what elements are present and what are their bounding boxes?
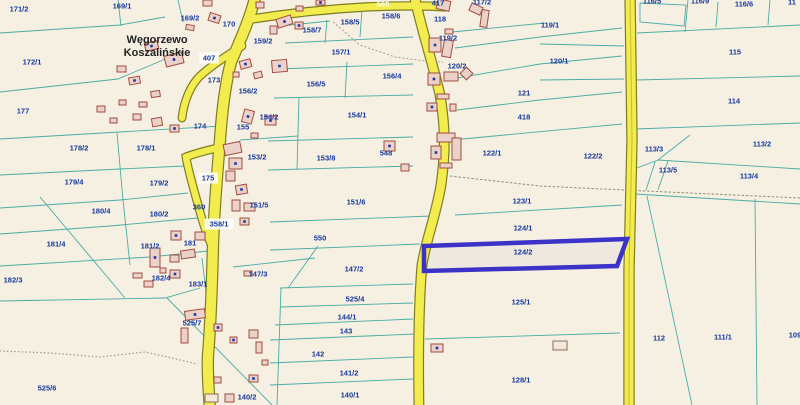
parcel-label: 154/2 — [260, 113, 279, 122]
parcel-boundary — [457, 92, 622, 110]
parcel-boundary — [540, 44, 624, 46]
parcel-boundary — [360, 10, 362, 37]
building — [186, 24, 195, 30]
address-point-dot — [194, 313, 197, 316]
parcel-boundary — [452, 124, 622, 140]
parcel-boundary — [455, 205, 622, 215]
address-point-dot — [243, 220, 246, 223]
parcel-label: 155 — [237, 123, 250, 132]
cadastral-map[interactable]: 171/2169/1169/2170159/2172/1407173156/21… — [0, 0, 800, 405]
parcel-label: 178/1 — [137, 144, 156, 153]
parcel-label: 170 — [223, 20, 236, 29]
parcel-boundary — [637, 25, 800, 33]
parcel-boundary — [274, 95, 413, 98]
parcel-label: 156/2 — [239, 87, 258, 96]
building — [232, 200, 240, 211]
building — [170, 255, 179, 262]
parcel-label: 180/2 — [150, 210, 169, 219]
parcel-label: 122/2 — [584, 152, 603, 161]
parcel-label: 525/7 — [183, 319, 202, 328]
building — [440, 163, 452, 168]
parcel-label: 181/4 — [47, 240, 67, 249]
parcel-label: 142 — [312, 350, 325, 359]
parcel-boundary — [768, 0, 770, 25]
parcel-boundary — [635, 76, 800, 80]
parcel-label: 114 — [728, 97, 741, 106]
parcel-label: 156/5 — [307, 80, 326, 89]
parcel-label: 183/1 — [189, 280, 208, 289]
map-viewport[interactable]: 171/2169/1169/2170159/2172/1407173156/21… — [0, 0, 800, 405]
parcel-label: 525/6 — [38, 384, 57, 393]
address-point-dot — [435, 151, 438, 154]
building — [160, 268, 166, 273]
address-point-dot — [240, 188, 243, 191]
building — [253, 71, 262, 79]
building — [133, 114, 141, 120]
parcel-boundary — [647, 196, 692, 405]
parcel-label: 124/1 — [514, 224, 533, 233]
address-point-dot — [252, 377, 255, 380]
parcel-boundary — [240, 136, 298, 140]
parcel-label: 128/1 — [512, 376, 531, 385]
parcel-label: 11 — [788, 0, 796, 7]
parcel-label: 120/1 — [550, 57, 569, 66]
address-point-dot — [154, 256, 157, 259]
parcel-boundary — [457, 56, 622, 78]
parcel-label: 525/4 — [346, 295, 366, 304]
parcel-boundary — [452, 23, 545, 32]
parcel-label: 124/2 — [514, 248, 533, 257]
parcel-boundary — [658, 160, 800, 169]
parcel-label: 182/3 — [4, 276, 23, 285]
parcel-label: 182/4 — [152, 274, 172, 283]
parcel-boundary — [280, 284, 413, 288]
buildings-layer — [97, 0, 567, 402]
address-point-dot — [436, 347, 439, 350]
building — [226, 171, 235, 181]
parcel-boundary — [270, 357, 413, 363]
address-point-dot — [173, 127, 176, 130]
parcel-label: 159/2 — [254, 37, 273, 46]
address-point-dot — [232, 339, 235, 342]
parcel-label: 118 — [434, 15, 446, 24]
parcel-label: 140/1 — [341, 391, 360, 400]
parcel-label: 123/1 — [513, 197, 532, 206]
building — [262, 360, 268, 365]
building — [214, 377, 221, 383]
parcel-boundary — [268, 137, 413, 141]
parcel-label: 121 — [518, 89, 531, 98]
parcel-label: 111/1 — [714, 333, 732, 342]
address-point-dot — [434, 44, 437, 47]
parcel-label: 117/2 — [473, 0, 491, 7]
parcel-label: 181 — [184, 239, 197, 248]
building — [181, 328, 188, 343]
address-point-dot — [298, 24, 301, 27]
building — [133, 273, 142, 278]
parcel-label: 407 — [203, 54, 216, 63]
parcel-label: 113/3 — [645, 145, 663, 154]
parcel-boundary — [425, 333, 620, 339]
parcel-boundary — [297, 97, 299, 170]
building — [117, 66, 126, 72]
parcel-label: 173 — [208, 76, 221, 85]
parcel-label: 175 — [202, 174, 215, 183]
parcel-label: 417 — [432, 0, 445, 8]
parcel-label: 119/1 — [541, 21, 559, 30]
building — [296, 6, 303, 11]
parcel-boundary — [635, 123, 800, 129]
parcel-label: 156/4 — [383, 72, 403, 81]
address-point-dot — [175, 234, 178, 237]
parcel-boundary — [635, 194, 800, 204]
parcel-label: 151/6 — [347, 198, 366, 207]
parcel-boundary — [233, 258, 315, 267]
parcel-label: 153/8 — [317, 154, 336, 163]
parcel-boundary — [277, 64, 413, 69]
parcel-boundary — [345, 62, 347, 98]
parcel-label: 116/9 — [691, 0, 709, 6]
parcel-label: 171/2 — [10, 5, 29, 14]
parcel-boundary — [270, 216, 432, 222]
parcel-label: 180/4 — [92, 207, 112, 216]
parcel-boundary — [270, 379, 413, 385]
building — [256, 2, 264, 8]
parcel-label: 154/1 — [348, 111, 367, 120]
parcel-boundary — [325, 20, 327, 43]
parcel-boundary — [288, 246, 318, 288]
parcel-boundary — [270, 244, 420, 250]
parcel-label: 113/4 — [740, 172, 759, 181]
address-point-dot — [133, 79, 136, 82]
address-point-dot — [234, 162, 237, 165]
parcel-label: 158/7 — [303, 26, 322, 35]
parcel-boundary — [540, 79, 624, 80]
building — [151, 90, 161, 97]
address-point-dot — [174, 273, 177, 276]
building — [251, 133, 258, 138]
building — [452, 138, 461, 160]
parcel-label: 548 — [380, 149, 393, 158]
building — [256, 342, 262, 353]
building — [233, 72, 239, 77]
parcel-label: 158/5 — [341, 18, 360, 27]
address-point-dot — [431, 106, 434, 109]
building — [195, 232, 205, 240]
parcel-label: 178/2 — [70, 144, 89, 153]
building — [444, 72, 458, 81]
address-point-dot — [278, 65, 281, 68]
parcel-boundary — [0, 17, 165, 33]
parcel-label: 177 — [17, 107, 30, 116]
parcel-boundary — [0, 218, 198, 234]
building — [225, 394, 234, 402]
parcel-label: 179/2 — [150, 179, 169, 188]
parcel-boundary — [0, 166, 184, 175]
address-point-dot — [217, 326, 220, 329]
building — [450, 104, 456, 111]
parcel-label: 120/2 — [448, 62, 467, 71]
parcel-label: 113/5 — [659, 166, 677, 175]
building — [119, 100, 126, 105]
parcel-boundary — [285, 37, 413, 43]
parcel-label: 181/2 — [141, 242, 160, 251]
parcel-label: 119/2 — [439, 34, 457, 43]
building — [181, 249, 196, 259]
footpath-dotted-line — [0, 351, 197, 364]
parcel-label: 141/2 — [340, 369, 359, 378]
parcel-boundary — [0, 288, 200, 301]
parcel-label: 179/4 — [65, 178, 85, 187]
parcel-label: 360 — [193, 203, 206, 212]
parcel-label: 169/1 — [113, 2, 132, 11]
address-point-dot — [388, 145, 391, 148]
building — [401, 164, 409, 171]
parcel-label: 418 — [518, 113, 531, 122]
parcel-label: 157/1 — [332, 48, 351, 57]
address-point-dot — [319, 1, 322, 4]
building — [151, 117, 162, 127]
building — [97, 106, 105, 112]
parcel-boundary — [268, 166, 413, 170]
parcel-label: 140/2 — [238, 393, 257, 402]
parcel-boundary — [277, 288, 281, 405]
parcel-label: 147/2 — [345, 265, 364, 274]
parcel-label: 125/1 — [512, 298, 531, 307]
parcel-boundaries-layer — [0, 0, 800, 405]
parcel-boundary — [0, 126, 222, 139]
parcel-label: 153/2 — [248, 153, 267, 162]
parcel-label: 115 — [729, 48, 741, 57]
building — [437, 94, 449, 99]
parcel-label: 169/2 — [181, 14, 200, 23]
parcel-label: 147/3 — [249, 270, 268, 279]
address-point-dot — [433, 78, 436, 81]
road-number-label: 560 — [377, 0, 390, 9]
parcel-boundary — [716, 2, 718, 27]
building — [205, 394, 218, 402]
parcel-label: 109 — [789, 331, 800, 340]
parcel-label: 143 — [340, 327, 353, 336]
parcel-label: 151/5 — [250, 201, 269, 210]
parcel-label: 122/1 — [483, 149, 502, 158]
parcel-label: 174 — [194, 122, 207, 131]
parcel-label: 116/5 — [643, 0, 661, 6]
parcel-label: 158/6 — [382, 12, 401, 21]
parcel-label: 112 — [653, 334, 665, 343]
building — [270, 26, 277, 34]
building — [110, 118, 117, 123]
parcel-boundary — [280, 303, 413, 307]
parcel-boundary — [646, 162, 655, 190]
parcel-label: 358/1 — [210, 220, 229, 229]
building — [203, 0, 212, 6]
building — [553, 341, 567, 350]
parcel-label: 116/6 — [735, 0, 753, 9]
parcel-label: 172/1 — [23, 58, 42, 67]
parcel-label: 144/1 — [338, 313, 357, 322]
parcel-boundary — [640, 3, 686, 26]
building — [139, 102, 147, 107]
parcel-boundary — [755, 199, 757, 405]
parcel-label: 550 — [314, 234, 327, 243]
place-name-line1: Węgorzewo — [126, 34, 187, 46]
place-name-line2: Koszalińskie — [124, 47, 191, 59]
building — [249, 330, 258, 338]
parcel-label: 113/2 — [753, 140, 771, 149]
